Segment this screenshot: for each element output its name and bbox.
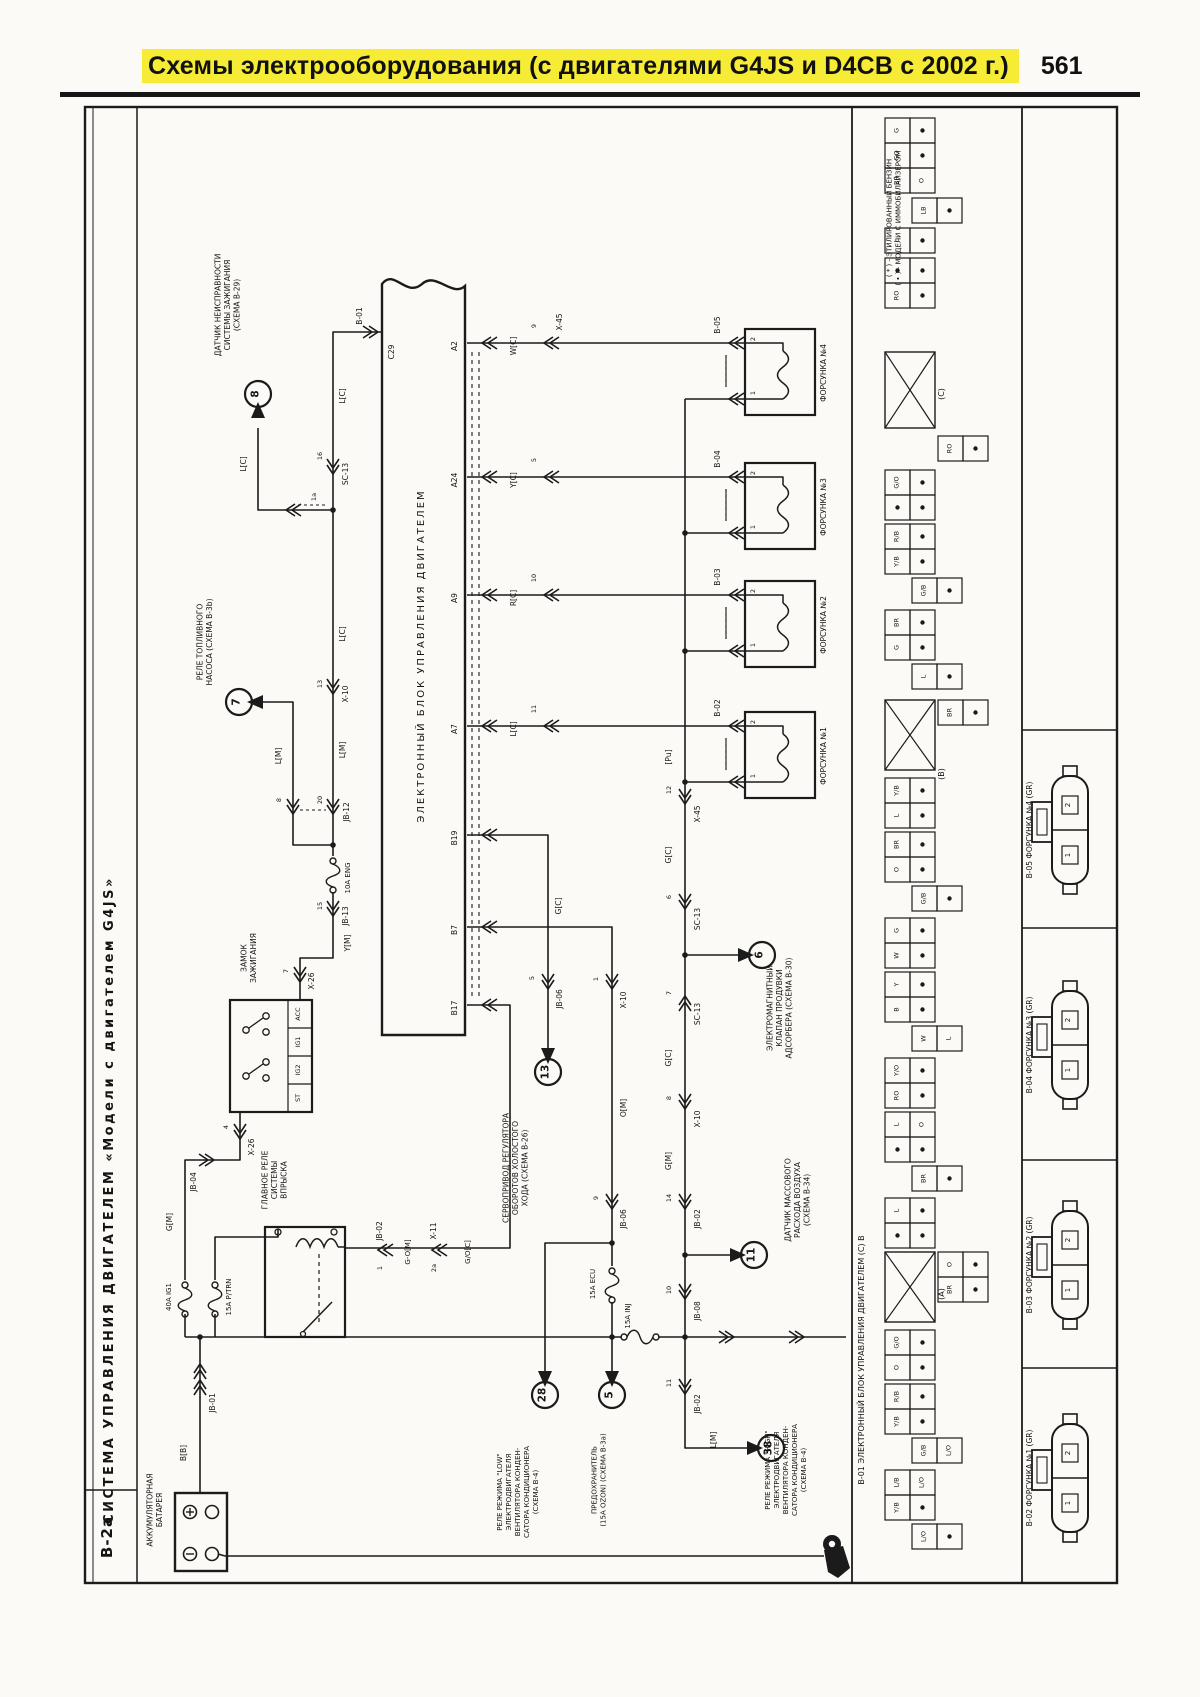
pin-dot — [947, 1534, 951, 1538]
leaded-fuel-note: ( * ) - ЭТИЛИРОВАННЫЙ БЕНЗИН( • ) - МОДЕ… — [885, 150, 903, 285]
connector-tab — [1032, 1450, 1052, 1490]
diagram-label: ЭЛЕКТРОННЫЙ БЛОК УПРАВЛЕНИЯ ДВИГАТЕЛЕМ — [414, 489, 427, 822]
connector-group-label: (C) — [937, 388, 946, 400]
diagram-label: РЕЛЕ РЕЖИМА "HIGH"ЭЛЕКТРОДВИГАТЕЛЯВЕНТИЛ… — [764, 1424, 808, 1516]
pin-dot — [920, 128, 924, 132]
diagram-label: X-11 — [429, 1222, 438, 1239]
injector-name: ФОРСУНКА №1 — [819, 727, 828, 785]
diagram-label: B[B] — [179, 1445, 188, 1461]
pin-dot — [895, 505, 899, 509]
pin-wire-color: BR — [893, 176, 901, 185]
pin-dot — [920, 505, 924, 509]
battery-terminal — [206, 1506, 219, 1519]
diagram-label: JB-08 — [693, 1301, 702, 1322]
diagram-label: SC-13 — [341, 463, 350, 485]
page-number: 561 — [1041, 52, 1083, 80]
diagram-label: A9 — [450, 593, 459, 603]
diagram-label: РЕЛЕ РЕЖИМА "LOW"ЭЛЕКТРОДВИГАТЕЛЯВЕНТИЛЯ… — [496, 1446, 540, 1538]
diagram-label: G[C] — [554, 897, 563, 914]
diagram-label: 7 — [282, 969, 290, 973]
pin-wire-color: L — [893, 813, 901, 817]
pin-dot — [973, 1262, 977, 1266]
diagram-label: ПРЕДОХРАНИТЕЛЬ(15A OZON) (СХЕМА B-3a) — [591, 1433, 608, 1527]
diagram-label: 13 — [316, 680, 324, 688]
fuse-icon — [212, 1282, 218, 1288]
diagram-label: G[C] — [664, 846, 673, 863]
connector-nub — [1063, 981, 1077, 991]
diagram-label: G/O[C] — [464, 1240, 472, 1264]
connector-nub — [1063, 1532, 1077, 1542]
pin-wire-color: O — [946, 1262, 954, 1267]
pin-wire-color: L/B — [893, 1477, 901, 1487]
diagram-label: Y[M] — [343, 934, 352, 952]
junction-dot — [682, 648, 688, 654]
signal-arrow-icon — [730, 1248, 746, 1262]
injector-connector-id: B-03 — [713, 568, 722, 586]
diagram-label: 7 — [665, 991, 673, 995]
junction-dot — [682, 952, 688, 958]
pin-wire-color: W — [920, 1035, 928, 1042]
injector-pin-number: 1 — [749, 774, 757, 778]
pin-dot — [920, 1233, 924, 1237]
schema-ref-number: 5 — [604, 1391, 616, 1398]
pin-dot — [920, 559, 924, 563]
diagram-label: 1 — [376, 1266, 384, 1270]
injector-connector-id: B-04 — [713, 450, 722, 468]
fuse-icon — [208, 1288, 222, 1311]
pin-wire-color: R/B — [893, 531, 901, 542]
connector-pin-number: 2 — [1064, 803, 1072, 807]
connector-pin-number: 2 — [1064, 1451, 1072, 1455]
diagram-label: АККУМУЛЯТОРНАЯБАТАРЕЯ — [145, 1473, 164, 1546]
diagram-label: L[M] — [338, 742, 347, 759]
diagram-label: 1a — [310, 493, 318, 501]
pin-dot — [920, 534, 924, 538]
junction-dot — [682, 530, 688, 536]
switch-contact — [263, 1059, 269, 1065]
injector-pin-number: 1 — [749, 525, 757, 529]
schema-ref-number: 6 — [754, 951, 766, 958]
diagram-label: L[M] — [709, 1432, 718, 1449]
injector-pin-number: 1 — [749, 643, 757, 647]
diagram-code: B-2a — [98, 1516, 116, 1558]
diagram-label: 14 — [665, 1194, 673, 1202]
pin-dot — [920, 788, 924, 792]
pin-wire-color: Y/B — [893, 1416, 901, 1428]
pin-wire-color: Y — [893, 982, 901, 987]
diagram-label: JB-02 — [693, 1209, 702, 1230]
connector-tab — [1037, 1024, 1047, 1050]
wire — [215, 1229, 278, 1280]
switch-contact — [243, 1073, 249, 1079]
fuse-icon — [609, 1268, 615, 1274]
diagram-label: L[C] — [239, 456, 248, 471]
connector-nub — [1063, 1099, 1077, 1109]
schema-ref-number: 28 — [537, 1388, 549, 1403]
switch-contact — [249, 1064, 263, 1074]
pin-wire-color: L/O — [920, 1531, 928, 1542]
diagram-label: 10A ENG — [344, 862, 352, 893]
pin-wire-color: RO — [893, 291, 901, 301]
switch-contact — [263, 1075, 269, 1081]
injector-wire — [745, 343, 783, 351]
diagram-label: IG1 — [294, 1036, 302, 1047]
diagram-label: A24 — [450, 472, 459, 487]
pin-wire-color: O — [918, 178, 926, 183]
diagram-label: JB-06 — [619, 1209, 628, 1230]
pin-dot — [920, 1505, 924, 1509]
pin-wire-color: L — [920, 674, 928, 678]
pin-dot — [920, 1340, 924, 1344]
diagram-label: 16 — [316, 452, 324, 460]
wire — [467, 927, 612, 1266]
diagram-label: JB-02 — [375, 1221, 384, 1242]
injector-name: ФОРСУНКА №4 — [819, 344, 828, 402]
pin-dot — [920, 1147, 924, 1151]
diagram-label: 8 — [275, 798, 283, 802]
signal-arrow-icon — [747, 1441, 763, 1455]
diagram-label: 10 — [665, 1286, 673, 1294]
ground-bolt-icon — [829, 1541, 835, 1547]
pin-dot — [973, 1287, 977, 1291]
connector-nub — [1063, 1201, 1077, 1211]
wire — [685, 1337, 754, 1448]
pin-wire-color: L — [945, 1036, 953, 1040]
diagram-label: 15 — [316, 902, 324, 910]
signal-arrow-icon — [541, 1048, 555, 1064]
connector-tab — [1032, 1237, 1052, 1277]
injector-pin-number: 1 — [749, 391, 757, 395]
connector-pin-number: 2 — [1064, 1018, 1072, 1022]
schema-ref-number: 11 — [746, 1248, 758, 1263]
wire — [258, 428, 333, 510]
diagram-label: 8 — [665, 1096, 673, 1100]
pin-dot — [947, 588, 951, 592]
diagram-label: ГЛАВНОЕ РЕЛЕСИСТЕМЫВПРЫСКА — [261, 1150, 289, 1209]
diagram-label: 6 — [665, 895, 673, 899]
junction-dot — [609, 1334, 615, 1340]
wire — [345, 1005, 510, 1248]
junction-dot — [609, 1240, 615, 1246]
diagram-label: ЗАМОКЗАЖИГАНИЯ — [239, 933, 258, 983]
diagram-label: JB-04 — [189, 1172, 198, 1193]
pin-dot — [920, 293, 924, 297]
pin-wire-color: Y/B — [893, 556, 901, 568]
diagram-label: L[C] — [338, 626, 347, 641]
pin-dot — [947, 1176, 951, 1180]
connector-chevron-icon — [432, 1244, 447, 1256]
signal-arrow-icon — [738, 948, 754, 962]
page-header: Схемы электрооборудования (с двигателями… — [142, 52, 1142, 81]
pin-dot — [920, 153, 924, 157]
diagram-label: G[C] — [664, 1049, 673, 1066]
pin-dot — [920, 480, 924, 484]
diagram-label: X-10 — [693, 1110, 702, 1127]
diagram-label: РЕЛЕ ТОПЛИВНОГОНАСОСА (СХЕМА B-3b) — [195, 598, 214, 685]
injector-pin-number: 2 — [749, 720, 757, 724]
wire — [185, 1112, 240, 1280]
pin-dot — [920, 1007, 924, 1011]
diagram-label: 9 — [530, 324, 538, 328]
injector-connector-id: B-05 — [713, 316, 722, 334]
schema-ref-number: 8 — [250, 390, 262, 397]
ground-bolt-icon — [824, 1546, 850, 1578]
diagram-label: ДАТЧИК МАССОВОГОРАСХОДА ВОЗДУХА(СХЕМА B-… — [784, 1158, 812, 1242]
connector-tab — [1037, 809, 1047, 835]
diagram-label: JB-13 — [341, 906, 350, 927]
junction-dot — [197, 1334, 203, 1340]
pin-wire-color: BR — [893, 840, 901, 849]
diagram-label: A7 — [450, 724, 459, 734]
diagram-label: СЕРВОПРИВОД РЕГУЛЯТОРАОБОРОТОВ ХОЛОСТОГО… — [502, 1112, 530, 1223]
pin-wire-color: G/O — [893, 476, 901, 488]
diagram-label: 11 — [665, 1379, 673, 1387]
injector-wire — [745, 726, 783, 734]
diagram-label: B7 — [450, 925, 459, 935]
fuse-icon — [330, 858, 336, 864]
pin-wire-color: B — [893, 1007, 901, 1011]
junction-dot — [682, 779, 688, 785]
diagram-label: X-45 — [693, 805, 702, 822]
pin-wire-color: Y/B — [893, 785, 901, 797]
fuse-icon — [178, 1288, 192, 1311]
pin-wire-color: Y/B — [893, 1502, 901, 1514]
pin-wire-color: GO — [893, 150, 901, 160]
pin-dot — [920, 1208, 924, 1212]
diagram-label: X-26 — [247, 1138, 256, 1155]
injector-connector-id: B-02 — [713, 699, 722, 717]
diagram-label: 1 — [592, 977, 600, 981]
pin-dot — [920, 928, 924, 932]
diagram-label: X-10 — [341, 685, 350, 702]
connector-tab — [1037, 1244, 1047, 1270]
diagram-label: A2 — [450, 341, 459, 351]
diagram-label: 4 — [222, 1125, 230, 1129]
wire — [333, 332, 382, 856]
pin-wire-color: O — [893, 1365, 901, 1370]
diagram-label: JB-06 — [555, 989, 564, 1010]
pin-dot — [920, 813, 924, 817]
relay-pin — [301, 1332, 306, 1337]
pin-dot — [920, 1394, 924, 1398]
diagram-label: 9 — [592, 1196, 600, 1200]
pin-wire-color: Y/O — [893, 1065, 901, 1077]
diagram-label: O[M] — [619, 1099, 628, 1117]
diagram-label: B17 — [450, 1000, 459, 1015]
diagram-label: X-10 — [619, 991, 628, 1008]
switch-contact — [263, 1029, 269, 1035]
diagram-label: ACC — [294, 1007, 302, 1021]
pin-wire-color: G/B — [920, 893, 928, 905]
pin-wire-color: G/B — [920, 585, 928, 597]
diagram-label: B19 — [450, 830, 459, 845]
header-rule — [60, 92, 1140, 97]
pin-dot — [973, 446, 977, 450]
pin-wire-color: O — [918, 1122, 926, 1127]
pin-wire-color: RO — [893, 1091, 901, 1101]
wire — [263, 702, 333, 845]
signal-arrow-icon — [605, 1371, 619, 1387]
junction-dot — [682, 1334, 688, 1340]
injector-pin-number: 2 — [749, 337, 757, 341]
connector-pin-number: 1 — [1064, 1501, 1072, 1505]
pin-dot — [895, 1147, 899, 1151]
pin-wire-color: W — [893, 952, 901, 959]
pin-dot — [920, 238, 924, 242]
pin-wire-color: G — [893, 645, 901, 650]
pin-wire-color: BR — [893, 618, 901, 627]
ecu-connector-label: B-01 ЭЛЕКТРОННЫЙ БЛОК УПРАВЛЕНИЯ ДВИГАТЕ… — [855, 1235, 866, 1484]
wiring-diagram-svg: СИСТЕМА УПРАВЛЕНИЯ ДВИГАТЕЛЕМ «Модели с … — [0, 0, 1200, 1697]
schema-ref-number: 7 — [231, 698, 243, 705]
connector-pin-number: 1 — [1064, 1288, 1072, 1292]
battery-box — [175, 1493, 227, 1571]
pin-dot — [920, 982, 924, 986]
diagram-label: 5 — [528, 976, 536, 980]
diagram-label: [Pu] — [664, 749, 673, 764]
junction-dot — [330, 507, 336, 513]
diagram-label: 20 — [316, 796, 324, 804]
fuse-icon — [326, 864, 340, 887]
connector-tab — [1032, 802, 1052, 842]
diagram-label: SC-13 — [693, 1003, 702, 1025]
pin-dot — [895, 268, 899, 272]
battery-terminal — [206, 1548, 219, 1561]
switch-contact — [243, 1027, 249, 1033]
diagram-label: JB-02 — [693, 1394, 702, 1415]
diagram-label: C29 — [387, 344, 396, 359]
pin-dot — [920, 953, 924, 957]
pin-wire-color: R/B — [893, 1391, 901, 1402]
pin-dot — [973, 710, 977, 714]
junction-dot — [682, 1252, 688, 1258]
diagram-label: R[C] — [509, 590, 518, 606]
relay-contact — [303, 1302, 332, 1332]
injector-wire — [745, 477, 783, 485]
diagram-label: SC-13 — [693, 908, 702, 930]
diagram-label: L[C] — [338, 388, 347, 403]
injector-wire — [745, 595, 783, 603]
connector-chevron-icon — [378, 1244, 393, 1256]
connector-tab — [1037, 1457, 1047, 1483]
sidebar-title: СИСТЕМА УПРАВЛЕНИЯ ДВИГАТЕЛЕМ «Модели с … — [102, 876, 117, 1524]
scanned-manual-page: Схемы электрооборудования (с двигателями… — [0, 0, 1200, 1697]
diagram-label: L[C] — [509, 721, 518, 736]
injector-coil-icon — [778, 485, 789, 533]
diagram-label: G-O[M] — [404, 1239, 412, 1264]
diagram-label: 11 — [530, 705, 538, 713]
diagram-label: ДАТЧИК НЕИСПРАВНОСТИСИСТЕМЫ ЗАЖИГАНИЯ(СХ… — [214, 254, 242, 357]
connector-pin-number: 1 — [1064, 853, 1072, 857]
pin-dot — [920, 1365, 924, 1369]
connector-nub — [1063, 1319, 1077, 1329]
pin-wire-color: LB — [920, 206, 928, 214]
injector-pin-number: 2 — [749, 589, 757, 593]
diagram-label: B-01 — [355, 307, 364, 325]
diagram-label: Y[C] — [509, 472, 518, 489]
switch-contact — [249, 1018, 263, 1028]
pin-dot — [947, 208, 951, 212]
diagram-label: 10 — [530, 574, 538, 582]
connector-tab — [1032, 1017, 1052, 1057]
diagram-label: L[M] — [274, 748, 283, 765]
diagram-label: 15A INJ — [624, 1303, 632, 1328]
injector-name: ФОРСУНКА №3 — [819, 478, 828, 536]
diagram-label: X-45 — [555, 313, 564, 330]
diagram-label: 5 — [530, 458, 538, 462]
pin-wire-color: G/O — [893, 1336, 901, 1348]
signal-arrow-icon — [247, 695, 263, 709]
diagram-label: X-26 — [307, 972, 316, 989]
diagram-label: IG2 — [294, 1064, 302, 1075]
diagram-label: JB-01 — [208, 1393, 217, 1414]
pin-wire-color: BR — [946, 708, 954, 717]
diagram-label: 12 — [665, 786, 673, 794]
pin-dot — [920, 1093, 924, 1097]
junction-dot — [330, 842, 336, 848]
connector-nub — [1063, 766, 1077, 776]
switch-contact — [263, 1013, 269, 1019]
diagram-label: 15A P/TRN — [225, 1279, 233, 1316]
pin-wire-color: BR — [920, 1174, 928, 1183]
injector-coil-icon — [778, 351, 789, 399]
pin-wire-color: L/O — [945, 1445, 953, 1456]
injector-name: ФОРСУНКА №2 — [819, 596, 828, 654]
injector-coil-icon — [778, 603, 789, 651]
relay-pin — [331, 1229, 337, 1235]
pin-dot — [947, 674, 951, 678]
pin-dot — [920, 842, 924, 846]
pin-wire-color: O — [893, 867, 901, 872]
diagram-label: 2a — [430, 1264, 438, 1272]
pin-dot — [920, 1068, 924, 1072]
pin-dot — [920, 645, 924, 649]
diagram-label: 40A IG1 — [165, 1283, 173, 1311]
pin-dot — [920, 620, 924, 624]
pin-wire-color: L — [893, 1122, 901, 1126]
diagram-label: ST — [294, 1094, 302, 1102]
diagram-label: ЭЛЕКТРОМАГНИТНЫЙКЛАПАН ПРОДУВКИАДСОРБЕРА… — [766, 957, 794, 1058]
fuse-icon — [605, 1274, 619, 1297]
diagram-label: W[C] — [509, 337, 518, 356]
diagram-label: G[M] — [664, 1152, 673, 1170]
connector-pin-number: 2 — [1064, 1238, 1072, 1242]
pin-wire-color: BR — [946, 1285, 954, 1294]
header-title: Схемы электрооборудования (с двигателями… — [142, 49, 1019, 83]
signal-arrow-icon — [538, 1371, 552, 1387]
pin-dot — [920, 1419, 924, 1423]
pin-wire-color: RO — [946, 444, 954, 454]
pin-wire-color: G/B — [920, 1445, 928, 1457]
main-relay-box — [265, 1227, 345, 1337]
diagram-label: JB-12 — [342, 802, 351, 823]
pin-dot — [947, 896, 951, 900]
pin-dot — [920, 268, 924, 272]
wire — [545, 1243, 612, 1378]
pin-wire-color: L — [893, 1208, 901, 1212]
pin-wire-color: G — [893, 128, 901, 133]
connector-nub — [1063, 1414, 1077, 1424]
diagram-label: G[M] — [165, 1213, 174, 1231]
pin-wire-color: L/O — [918, 1477, 926, 1488]
connector-nub — [1063, 884, 1077, 894]
fuse-icon — [627, 1330, 653, 1344]
signal-arrow-icon — [251, 402, 265, 418]
injector-coil-icon — [778, 734, 789, 782]
pin-dot — [920, 867, 924, 871]
pin-wire-color: G — [893, 928, 901, 933]
schema-ref-number: 13 — [540, 1065, 552, 1080]
